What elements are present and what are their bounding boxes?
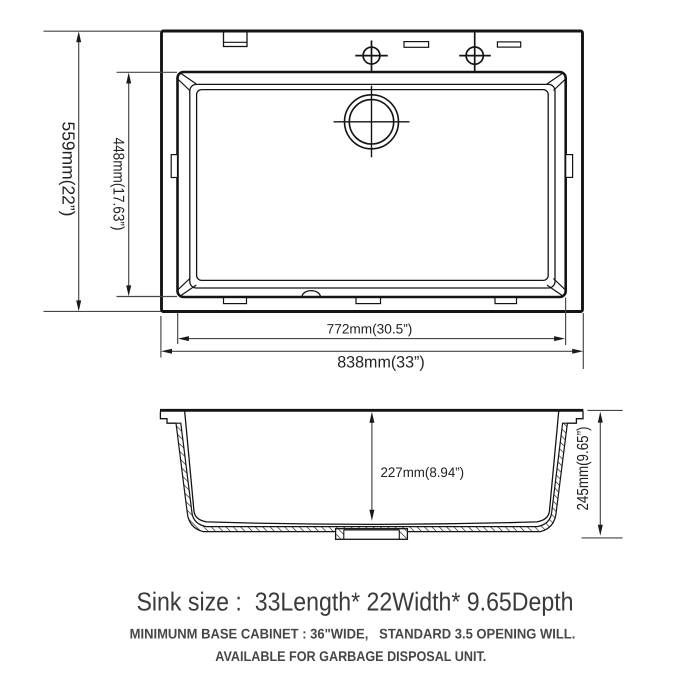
svg-text:245mm(9.65”): 245mm(9.65”) <box>575 427 592 511</box>
svg-text:227mm(8.94”): 227mm(8.94”) <box>381 465 465 480</box>
svg-text:AVAILABLE FOR GARBAGE DISPOSAL: AVAILABLE FOR GARBAGE DISPOSAL UNIT. <box>215 648 486 664</box>
svg-text:Sink size : 33Length* 22Width: Sink size : 33Length* 22Width* 9.65Depth <box>137 586 574 616</box>
svg-text:838mm(33”): 838mm(33”) <box>337 354 425 372</box>
svg-text:448mm(17.63”): 448mm(17.63”) <box>110 138 127 231</box>
svg-text:772mm(30.5”): 772mm(30.5”) <box>327 322 413 337</box>
svg-text:559mm(22”): 559mm(22”) <box>59 122 79 217</box>
svg-text:MINIMUNM BASE CABINET : 36"WID: MINIMUNM BASE CABINET : 36"WIDE, STANDAR… <box>130 626 576 642</box>
